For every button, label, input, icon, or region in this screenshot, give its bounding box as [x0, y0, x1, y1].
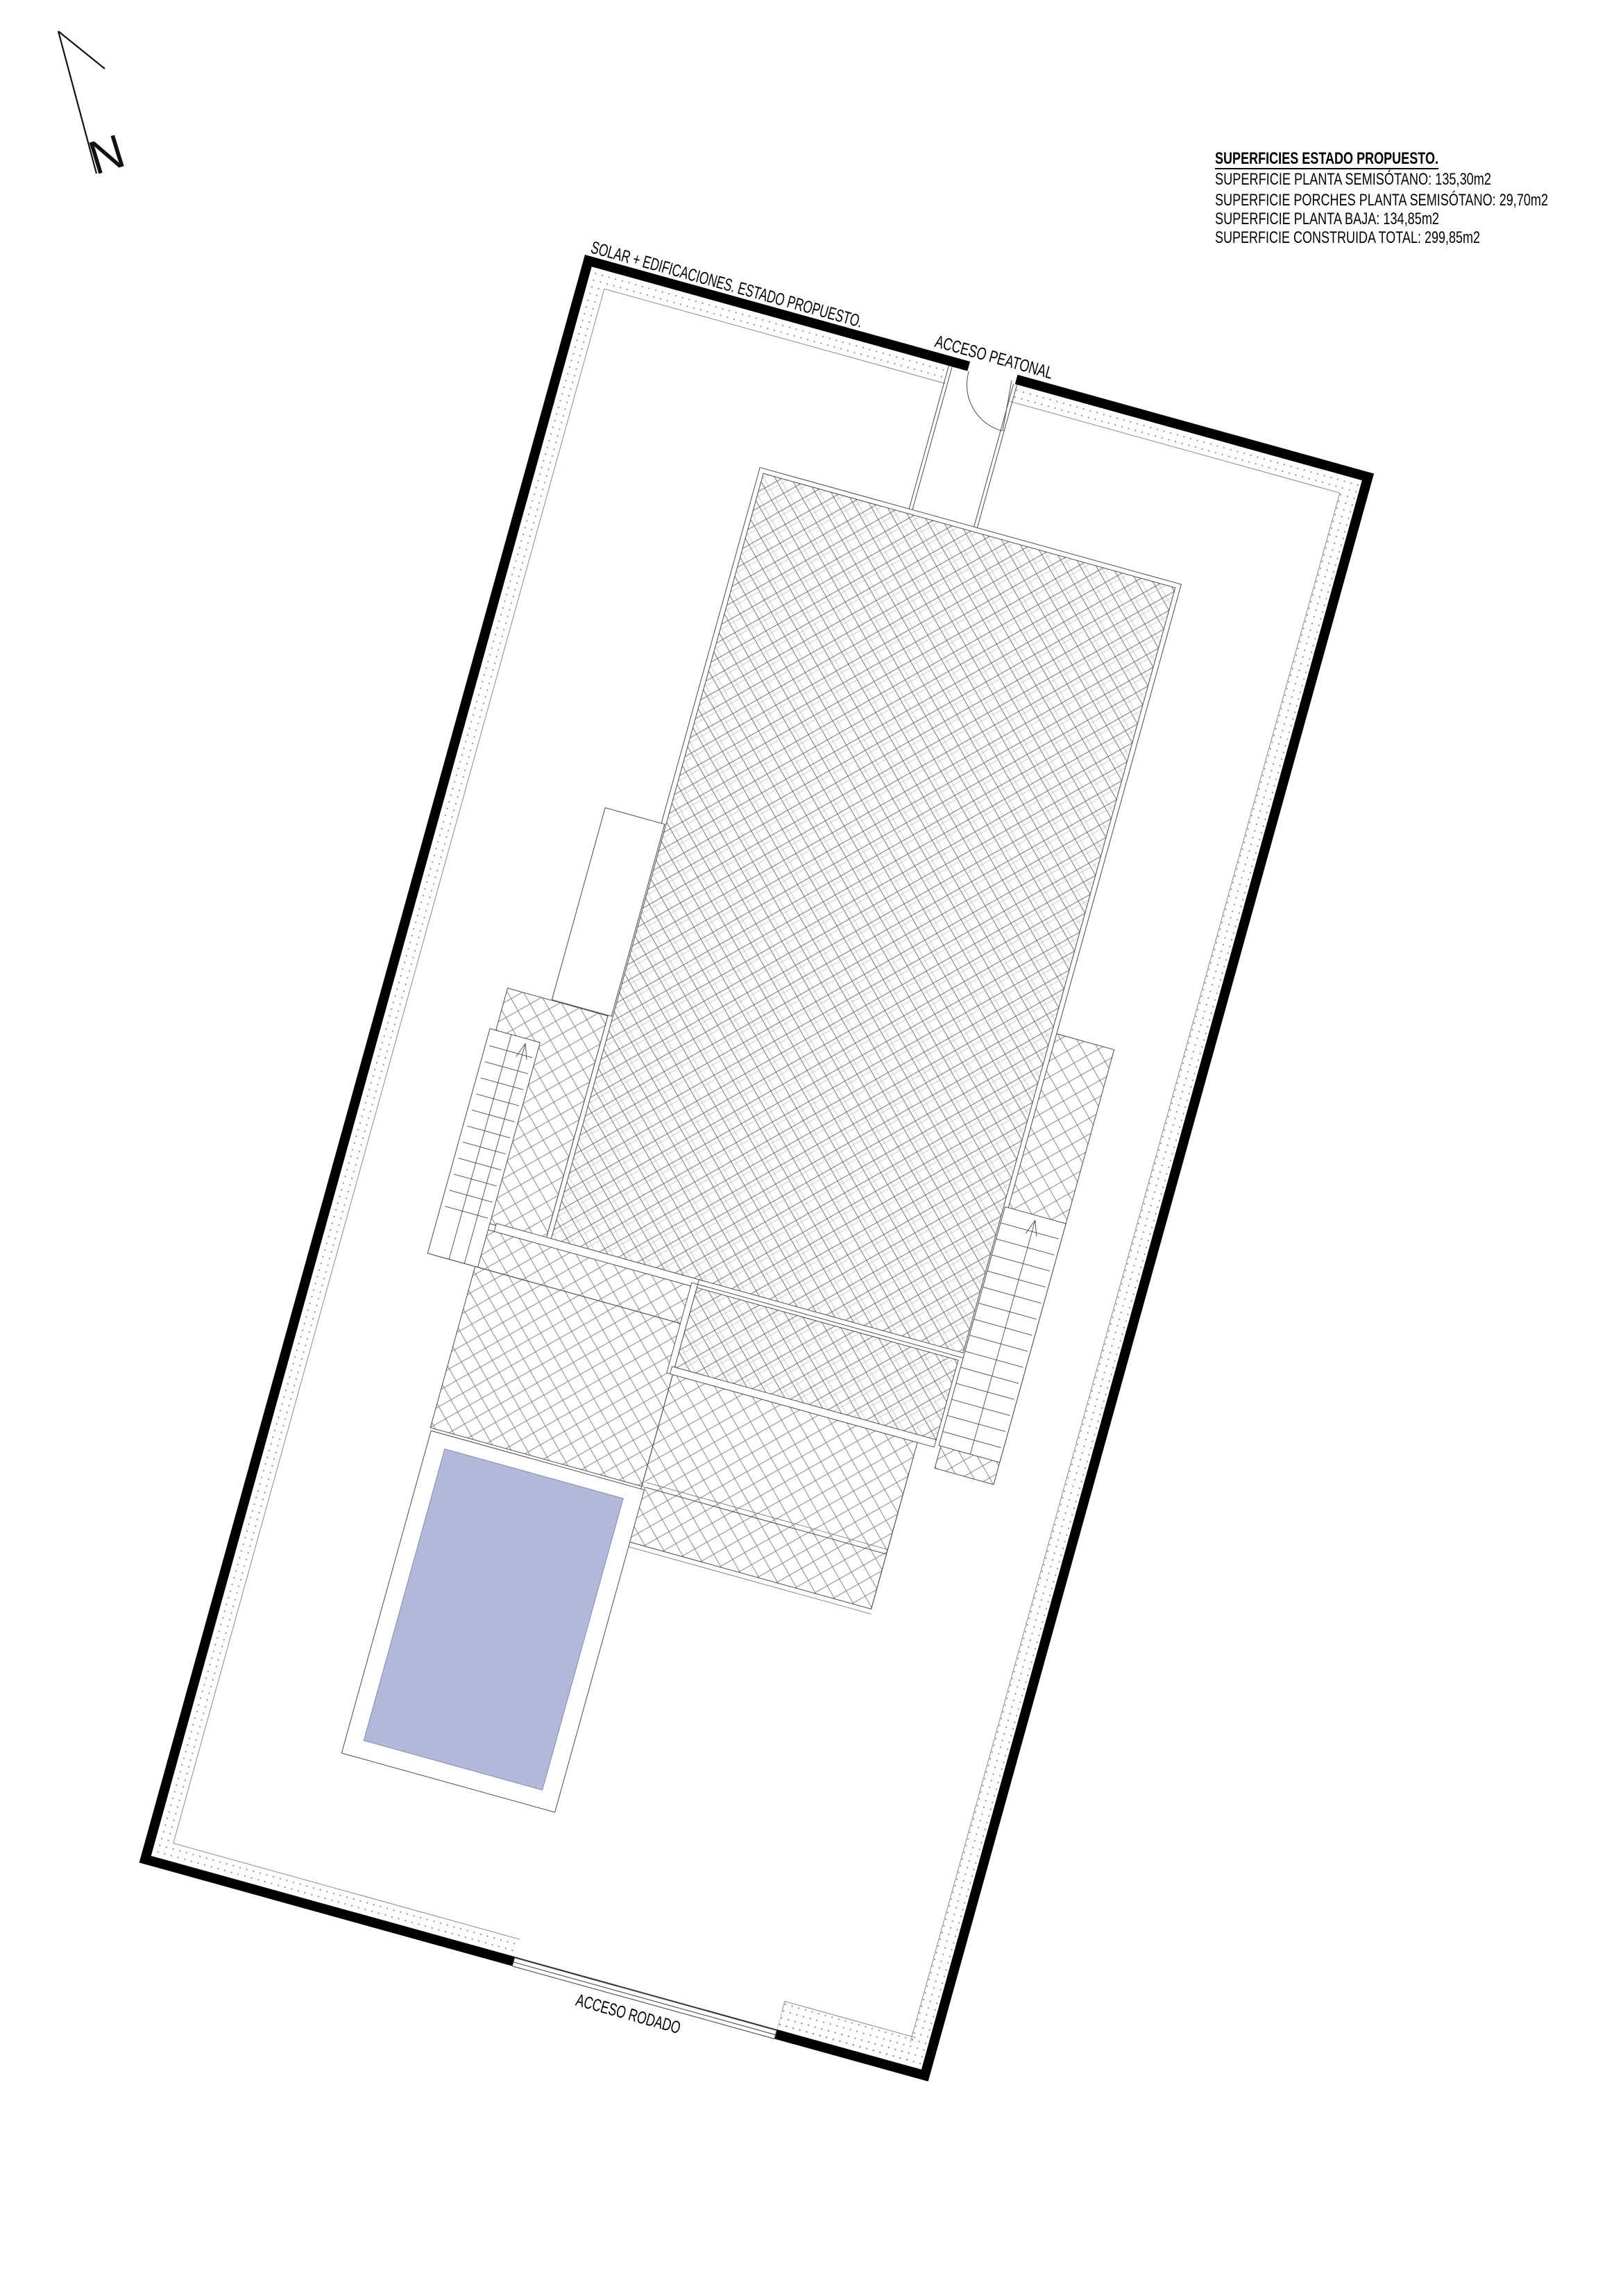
svg-text:SUPERFICIE PORCHES PLANTA SEMI: SUPERFICIE PORCHES PLANTA SEMISÓTANO: 29…	[1215, 191, 1548, 210]
svg-text:SUPERFICIE CONSTRUIDA TOTAL: 2: SUPERFICIE CONSTRUIDA TOTAL: 299,85m2	[1215, 228, 1480, 247]
svg-text:SUPERFICIES ESTADO PROPUESTO.: SUPERFICIES ESTADO PROPUESTO.	[1215, 149, 1438, 168]
svg-text:SUPERFICIE PLANTA SEMISÓTANO:: SUPERFICIE PLANTA SEMISÓTANO: 135,30m2	[1215, 170, 1491, 189]
svg-text:SUPERFICIE PLANTA BAJA: 134,85: SUPERFICIE PLANTA BAJA: 134,85m2	[1215, 210, 1439, 228]
